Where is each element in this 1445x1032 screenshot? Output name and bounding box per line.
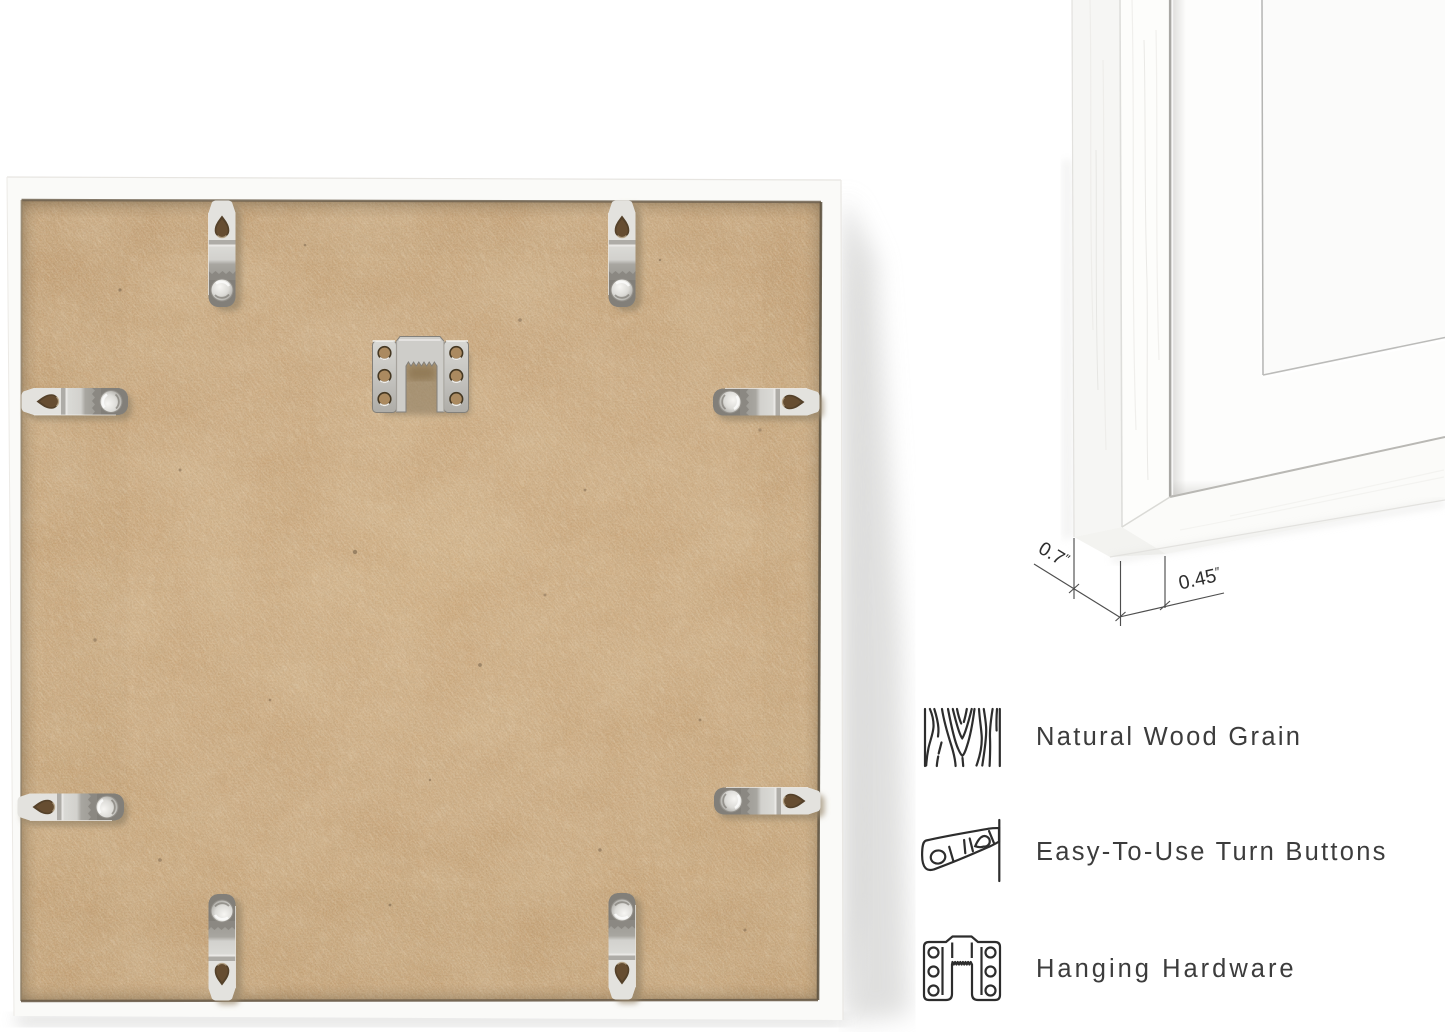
svg-text:Natural Wood Grain: Natural Wood Grain (1036, 723, 1302, 751)
svg-text:Hanging Hardware: Hanging Hardware (1036, 955, 1297, 983)
svg-text:Easy-To-Use Turn Buttons: Easy-To-Use Turn Buttons (1036, 838, 1388, 866)
